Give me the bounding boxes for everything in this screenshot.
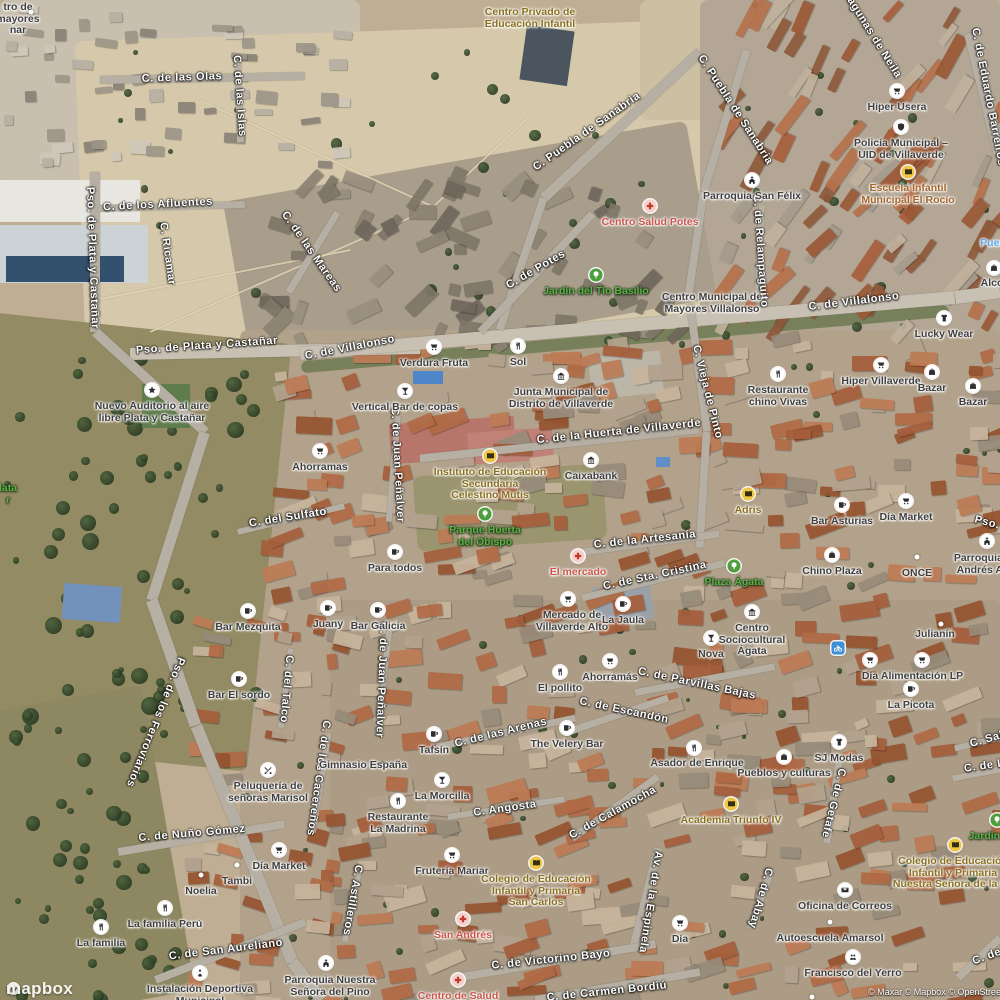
poi-label-text: Hiper Villaverde	[841, 376, 920, 388]
poi-label-text: Celestino Mutis	[434, 490, 547, 502]
shopping-cart-icon[interactable]	[604, 655, 617, 668]
poi-label-text: Parque Huerta	[449, 525, 521, 537]
poi-label-text: La familia Perú	[128, 919, 203, 931]
poi-label[interactable]: Centro Privado deEducación Infantil	[485, 7, 575, 30]
shopping-bag-icon[interactable]	[778, 751, 791, 764]
poi-label[interactable]: Restaurantechino Vivas	[748, 385, 809, 408]
cocktail-icon[interactable]	[399, 385, 412, 398]
bar-mug-icon[interactable]	[242, 605, 255, 618]
poi-label[interactable]: Día	[672, 934, 688, 946]
shopping-cart-icon[interactable]	[273, 844, 286, 857]
people-icon[interactable]	[847, 951, 860, 964]
poi-label-text: El pollito	[538, 683, 582, 695]
shopping-bag-icon[interactable]	[988, 262, 1000, 275]
poi-label[interactable]: Parque Huertadel Obispo	[449, 525, 521, 548]
poi-label[interactable]: Pueblos y culturas	[737, 768, 830, 780]
poi-label[interactable]: The Velery Bar	[531, 739, 604, 751]
poi-label-text: señoras Marisol	[228, 793, 308, 805]
poi-label[interactable]: Sol	[510, 357, 526, 369]
church-icon[interactable]	[320, 957, 333, 970]
poi-label-text: Instalación Deportiva	[147, 984, 253, 996]
poi-label[interactable]: Verdura Fruta	[400, 358, 468, 370]
cocktail-icon[interactable]	[705, 632, 718, 645]
bar-mug-icon[interactable]	[372, 604, 385, 617]
poi-label-text: Nuestra Señora de la Lu	[893, 879, 1000, 891]
shopping-cart-icon[interactable]	[875, 359, 888, 372]
poi-label[interactable]: Bar El sordo	[208, 690, 270, 702]
town-hall-icon[interactable]	[555, 370, 568, 383]
poi-label[interactable]: Academia Triunfo IV	[681, 815, 782, 827]
poi-label-text: Día	[862, 671, 878, 683]
poi-label-text: Vertical Bar de copas	[352, 402, 458, 414]
poi-label[interactable]: Oficina de Correos	[798, 901, 892, 913]
school-icon[interactable]	[902, 166, 915, 179]
poi-label-text: Noelia	[185, 886, 217, 898]
poi-label-text: La Jaula	[602, 615, 644, 627]
poi-label-text: Nova	[698, 649, 724, 661]
poi-label-text: Frutería Mariar	[415, 866, 489, 878]
poi-label-text: Bazar	[918, 383, 947, 395]
bar-mug-icon[interactable]	[428, 728, 441, 741]
bank-icon[interactable]	[585, 454, 598, 467]
poi-label[interactable]: Alimentación LP	[881, 671, 963, 683]
poi-label-text: Sol	[510, 357, 526, 369]
poi-label[interactable]: SJ Modas	[814, 753, 863, 765]
poi-label-text: Bar Asturias	[811, 516, 873, 528]
poi-label[interactable]: Jardín d	[969, 831, 1000, 843]
poi-label-text: UID de Villaverde	[854, 150, 948, 162]
restaurant-icon[interactable]	[554, 666, 567, 679]
poi-label-text: Chino Plaza	[802, 566, 862, 578]
poi-label-text: Restaurante	[368, 812, 429, 824]
poi-label[interactable]: RestauranteLa Madrina	[368, 812, 429, 835]
poi-label[interactable]: Parroquia San Félix	[703, 191, 801, 203]
poi-label-text: Día	[672, 934, 688, 946]
school-icon[interactable]	[725, 798, 738, 811]
poi-label[interactable]: La Morcilla	[415, 791, 470, 803]
bar-mug-icon[interactable]	[322, 602, 335, 615]
poi-label-text: La Picota	[888, 700, 935, 712]
poi-label[interactable]: Colegio de EducaciónInfantil y PrimariaN…	[893, 856, 1000, 891]
shopping-cart-icon[interactable]	[864, 654, 877, 667]
poi-label-text: Parroquia d	[954, 553, 1000, 565]
poi-dot-icon[interactable]	[939, 622, 944, 627]
poi-label-text: El mercado	[550, 567, 607, 579]
poi-label-text: La Morcilla	[415, 791, 470, 803]
medical-cross-icon[interactable]	[457, 913, 470, 926]
medical-cross-icon[interactable]	[452, 974, 465, 987]
bar-mug-icon[interactable]	[233, 673, 246, 686]
park-tree-icon[interactable]	[991, 814, 1000, 827]
mapbox-logo[interactable]: mapbox	[6, 981, 21, 996]
poi-label-text: nar	[0, 25, 40, 37]
poi-label-text: Lucky Wear	[915, 329, 974, 341]
poi-label-text: Parroquia San Félix	[703, 191, 801, 203]
hairdresser-icon[interactable]	[262, 764, 275, 777]
poi-label-text: Para todos	[368, 563, 422, 575]
town-hall-icon[interactable]	[746, 606, 759, 619]
poi-label[interactable]: Junta Municipal deDistrito de Villaverde	[509, 387, 613, 410]
poi-label[interactable]: Bar Asturias	[811, 516, 873, 528]
poi-label[interactable]: Chino Plaza	[802, 566, 862, 578]
school-icon[interactable]	[742, 488, 755, 501]
restaurant-icon[interactable]	[95, 921, 108, 934]
poi-label[interactable]: Tafsín	[419, 745, 449, 757]
restaurant-icon[interactable]	[392, 795, 405, 808]
poi-dot-icon[interactable]	[29, 10, 34, 15]
poi-dot-icon[interactable]	[828, 920, 833, 925]
poi-label-text: lata	[0, 483, 17, 495]
poi-label[interactable]: Día Market	[879, 512, 932, 524]
poi-label[interactable]: Centro Municipal deMayores Villalonso	[662, 292, 762, 315]
poi-dot-icon[interactable]	[810, 995, 815, 1000]
poi-label-text: del Obispo	[449, 537, 521, 549]
poi-label-text: Hiper Usera	[868, 102, 927, 114]
sports-icon[interactable]	[194, 967, 207, 980]
poi-label[interactable]: Hiper Usera	[868, 102, 927, 114]
poi-label-text: Bar Mezquita	[215, 622, 280, 634]
poi-label-text: Tambi	[222, 876, 252, 888]
poi-label-text: Asador de Enrique	[650, 758, 743, 770]
poi-label[interactable]: Ahorramás	[582, 672, 637, 684]
poi-label-text: Señora del Pino	[284, 987, 375, 999]
poi-label[interactable]: Día	[862, 671, 878, 683]
poi-label[interactable]: Centro de Salud	[418, 991, 499, 1000]
poi-label[interactable]: Noelia	[185, 886, 217, 898]
poi-label-text: Alimentación LP	[881, 671, 963, 683]
poi-label-text: Educación Infantil	[485, 19, 575, 31]
poi-label-text: Adris	[735, 505, 762, 517]
attribution-text: © Maxar © Mapbox © OpenStreetMap	[868, 987, 1000, 997]
poi-label-text: Pueblos y culturas	[737, 768, 830, 780]
poi-label-text: Ágata	[719, 646, 786, 658]
shopping-cart-icon[interactable]	[446, 849, 459, 862]
poi-label-text: San Carlos	[481, 897, 591, 909]
school-icon[interactable]	[949, 839, 962, 852]
poi-label[interactable]: Nova	[698, 649, 724, 661]
poi-label-text: Parroquia Nuestra	[284, 975, 375, 987]
shopping-cart-icon[interactable]	[314, 445, 327, 458]
poi-dot-icon[interactable]	[199, 873, 204, 878]
clothing-icon[interactable]	[833, 736, 846, 749]
poi-label-text: Bazar	[959, 397, 988, 409]
poi-label[interactable]: Bar Galicia	[351, 621, 406, 633]
poi-label[interactable]: Instalación DeportivaMunicipal	[147, 984, 253, 1000]
poi-label[interactable]: Bazar	[918, 383, 947, 395]
poi-label-text: Alco	[981, 278, 1000, 290]
police-shield-icon[interactable]	[895, 121, 908, 134]
poi-label[interactable]: Vertical Bar de copas	[352, 402, 458, 414]
poi-label[interactable]: Peluquería deseñoras Marisol	[228, 781, 308, 804]
poi-label-text: SJ Modas	[814, 753, 863, 765]
poi-label[interactable]: tro demayoresnar	[0, 2, 40, 37]
poi-label[interactable]: La familia Perú	[128, 919, 203, 931]
poi-label[interactable]: Para todos	[368, 563, 422, 575]
clothing-icon[interactable]	[938, 312, 951, 325]
park-tree-icon[interactable]	[590, 269, 603, 282]
poi-label[interactable]: Gimnasio España	[319, 760, 407, 772]
poi-label-text: Verdura Fruta	[400, 358, 468, 370]
poi-label[interactable]: Asador de Enrique	[650, 758, 743, 770]
poi-label-text: Ahorramas	[292, 462, 347, 474]
poi-label[interactable]: Mercado deVillaverde Alto	[536, 610, 608, 633]
school-icon[interactable]	[484, 450, 497, 463]
bar-mug-icon[interactable]	[836, 499, 849, 512]
poi-label-text: Julianín	[915, 629, 955, 641]
bar-mug-icon[interactable]	[561, 722, 574, 735]
poi-label-text: San Andrés	[434, 930, 492, 942]
poi-label[interactable]: El pollito	[538, 683, 582, 695]
attraction-icon[interactable]	[146, 384, 159, 397]
poi-label-text: Junta Municipal de	[509, 387, 613, 399]
poi-label-text: Jardín del Tío Basilio	[543, 286, 649, 298]
poi-label-text: Mayores Villalonso	[662, 304, 762, 316]
poi-label-text: La Madrina	[368, 824, 429, 836]
poi-label[interactable]: Día Market	[252, 861, 305, 873]
shopping-cart-icon[interactable]	[674, 917, 687, 930]
bar-mug-icon[interactable]	[905, 683, 918, 696]
poi-label-text: Jardín d	[969, 831, 1000, 843]
shopping-cart-icon[interactable]	[900, 495, 913, 508]
poi-label[interactable]: San Andrés	[434, 930, 492, 942]
bicycle-icon[interactable]	[832, 642, 845, 655]
school-icon[interactable]	[530, 857, 543, 870]
poi-label-text: ONCE	[902, 568, 932, 580]
poi-label[interactable]: Caixabank	[565, 471, 618, 483]
poi-label-text: Bar Galicia	[351, 621, 406, 633]
poi-label-text: chino Vivas	[748, 397, 809, 409]
poi-label[interactable]: Lucky Wear	[915, 329, 974, 341]
poi-label-text: libre Plata y Castañar	[95, 413, 210, 425]
poi-label-text: Tafsín	[419, 745, 449, 757]
poi-label-text: Bar El sordo	[208, 690, 270, 702]
poi-label[interactable]: Centro Salud Potes	[602, 217, 699, 229]
shopping-bag-icon[interactable]	[926, 366, 939, 379]
poi-label-text: Ahorramás	[582, 672, 637, 684]
poi-label-text: Municipal	[147, 996, 253, 1000]
poi-label[interactable]: Tambi	[222, 876, 252, 888]
shopping-bag-icon[interactable]	[967, 380, 980, 393]
cocktail-icon[interactable]	[436, 774, 449, 787]
poi-label-text: Policía Municipal –	[854, 138, 948, 150]
poi-label-text: Caixabank	[565, 471, 618, 483]
shopping-cart-icon[interactable]	[428, 341, 441, 354]
mapbox-wordmark: mapbox	[6, 979, 73, 999]
poi-label[interactable]: latar	[0, 483, 17, 506]
poi-label-text: Centro Salud Potes	[602, 217, 699, 229]
bar-mug-icon[interactable]	[389, 546, 402, 559]
poi-label-text: Día Market	[252, 861, 305, 873]
poi-label[interactable]: Plaza Ágata	[705, 577, 764, 589]
poi-label[interactable]: Frutería Mariar	[415, 866, 489, 878]
poi-label[interactable]: Adris	[735, 505, 762, 517]
poi-label-text: Municipal El Rocío	[861, 195, 954, 207]
poi-label-text: La familia	[77, 938, 125, 950]
poi-label-text: Colegio de Educación	[481, 874, 591, 886]
restaurant-icon[interactable]	[688, 742, 701, 755]
bar-mug-icon[interactable]	[617, 598, 630, 611]
poi-label-text: Centro de Salud	[418, 991, 499, 1000]
poi-label-text: Puen	[980, 238, 1000, 250]
poi-label[interactable]: Juany	[313, 619, 343, 631]
poi-label-text: Nuevo Auditorio al aire	[95, 401, 210, 413]
poi-label-text: Colegio de Educación	[893, 856, 1000, 868]
medical-cross-icon[interactable]	[572, 550, 585, 563]
shopping-bag-icon[interactable]	[826, 549, 839, 562]
poi-label[interactable]: Policía Municipal –UID de Villaverde	[854, 138, 948, 161]
poi-label[interactable]: Francisco del Yerro	[804, 968, 901, 980]
poi-label[interactable]: CentroSocioculturalÁgata	[719, 623, 786, 658]
poi-label[interactable]: Julianín	[915, 629, 955, 641]
poi-label-text: Escuela Infantil	[861, 183, 954, 195]
poi-label-text: tro de	[0, 2, 40, 14]
poi-label[interactable]: Instituto de EducaciónSecundariaCelestin…	[434, 467, 547, 502]
poi-label-text: Día Market	[879, 512, 932, 524]
poi-label-text: Mercado de	[536, 610, 608, 622]
restaurant-icon[interactable]	[512, 340, 525, 353]
poi-label-text: Andrés Ap	[954, 565, 1000, 577]
park-tree-icon[interactable]	[728, 560, 741, 573]
poi-label[interactable]: Colegio de EducaciónInfantil y PrimariaS…	[481, 874, 591, 909]
poi-label-text: Juany	[313, 619, 343, 631]
poi-label-text: Gimnasio España	[319, 760, 407, 772]
shopping-cart-icon[interactable]	[916, 654, 929, 667]
poi-label-text: Villaverde Alto	[536, 622, 608, 634]
poi-label[interactable]: Ahorramas	[292, 462, 347, 474]
poi-label[interactable]: Bar Mezquita	[215, 622, 280, 634]
poi-label-text: Centro Municipal de	[662, 292, 762, 304]
shopping-cart-icon[interactable]	[891, 85, 904, 98]
poi-dot-icon[interactable]	[915, 555, 920, 560]
poi-label-text: Restaurante	[748, 385, 809, 397]
poi-label[interactable]: Escuela InfantilMunicipal El Rocío	[861, 183, 954, 206]
poi-dot-icon[interactable]	[235, 863, 240, 868]
poi-label[interactable]: El mercado	[550, 567, 607, 579]
poi-label-text: Centro	[719, 623, 786, 635]
poi-label[interactable]: Puen	[980, 238, 1000, 250]
poi-label-text: Oficina de Correos	[798, 901, 892, 913]
poi-label[interactable]: Parroquia NuestraSeñora del Pino	[284, 975, 375, 998]
poi-label[interactable]: Parroquia dAndrés Ap	[954, 553, 1000, 576]
map-canvas[interactable]: C. de las OlasC. de las IslasC. Puebla d…	[0, 0, 1000, 1000]
poi-label[interactable]: Hiper Villaverde	[841, 376, 920, 388]
post-envelope-icon[interactable]	[839, 884, 852, 897]
poi-label[interactable]: ONCE	[902, 568, 932, 580]
poi-label-text: Peluquería de	[228, 781, 308, 793]
church-icon[interactable]	[746, 174, 759, 187]
poi-label[interactable]: La Jaula	[602, 615, 644, 627]
poi-label[interactable]: La familia	[77, 938, 125, 950]
restaurant-icon[interactable]	[772, 368, 785, 381]
medical-cross-icon[interactable]	[644, 200, 657, 213]
poi-label-text: r	[0, 495, 17, 507]
poi-label-text: Plaza Ágata	[705, 577, 764, 589]
poi-label[interactable]: Nuevo Auditorio al airelibre Plata y Cas…	[95, 401, 210, 424]
poi-label-text: The Velery Bar	[531, 739, 604, 751]
shopping-cart-icon[interactable]	[562, 593, 575, 606]
poi-label[interactable]: Jardín del Tío Basilio	[543, 286, 649, 298]
restaurant-icon[interactable]	[159, 902, 172, 915]
poi-label-text: Centro Privado de	[485, 7, 575, 19]
poi-label[interactable]: Alco	[981, 278, 1000, 290]
church-icon[interactable]	[981, 535, 994, 548]
poi-label-text: Francisco del Yerro	[804, 968, 901, 980]
park-tree-icon[interactable]	[479, 508, 492, 521]
poi-label[interactable]: La Picota	[888, 700, 935, 712]
poi-label[interactable]: Autoescuela Amarsol	[777, 933, 884, 945]
poi-label[interactable]: Bazar	[959, 397, 988, 409]
poi-label-text: Instituto de Educación	[434, 467, 547, 479]
poi-label-text: Distrito de Villaverde	[509, 399, 613, 411]
poi-label-text: Autoescuela Amarsol	[777, 933, 884, 945]
poi-label-text: Academia Triunfo IV	[681, 815, 782, 827]
